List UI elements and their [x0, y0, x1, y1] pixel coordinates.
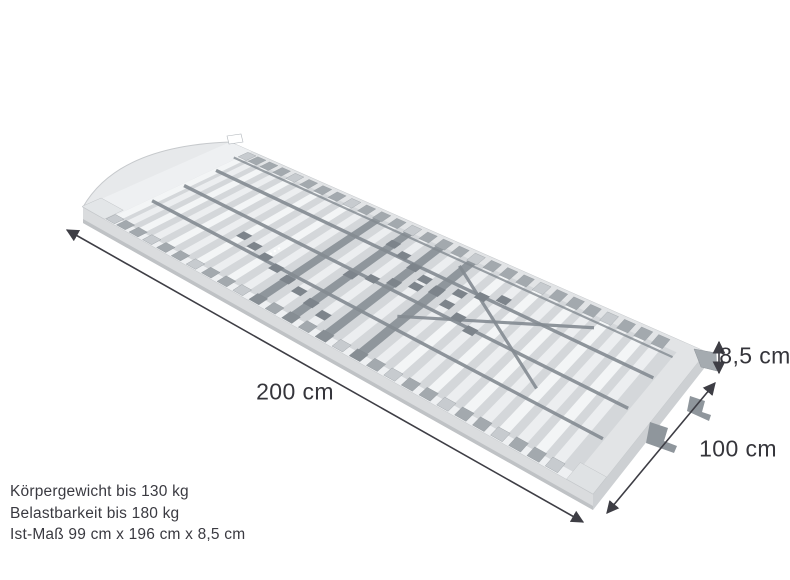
product-dimension-diagram: 200 cm 100 cm 8,5 cm Körpergewicht bis 1… — [0, 0, 790, 580]
spec-load-capacity: Belastbarkeit bis 180 kg — [10, 503, 245, 525]
height-dimension-label: 8,5 cm — [719, 343, 790, 370]
spec-list: Körpergewicht bis 130 kg Belastbarkeit b… — [10, 481, 245, 546]
spec-body-weight: Körpergewicht bis 130 kg — [10, 481, 245, 503]
bed-frame-drawing — [82, 134, 717, 510]
length-dimension-label: 200 cm — [256, 379, 334, 406]
width-dimension-label: 100 cm — [699, 436, 777, 463]
spec-actual-size: Ist-Maß 99 cm x 196 cm x 8,5 cm — [10, 524, 245, 546]
